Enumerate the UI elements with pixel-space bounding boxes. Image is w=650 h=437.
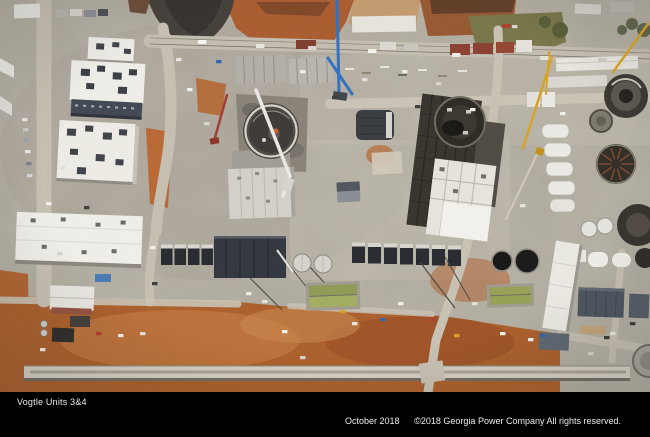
photo-vignette [0,0,650,392]
photo-title: Vogtle Units 3&4 [17,397,87,408]
aerial-photo [0,0,650,392]
photo-date: October 2018 [345,416,400,426]
screenshot-root: Vogtle Units 3&4 October 2018 ©2018 Geor… [0,0,650,437]
caption-bar: Vogtle Units 3&4 October 2018 ©2018 Geor… [0,392,650,437]
photo-copyright: ©2018 Georgia Power Company All rights r… [414,416,621,426]
